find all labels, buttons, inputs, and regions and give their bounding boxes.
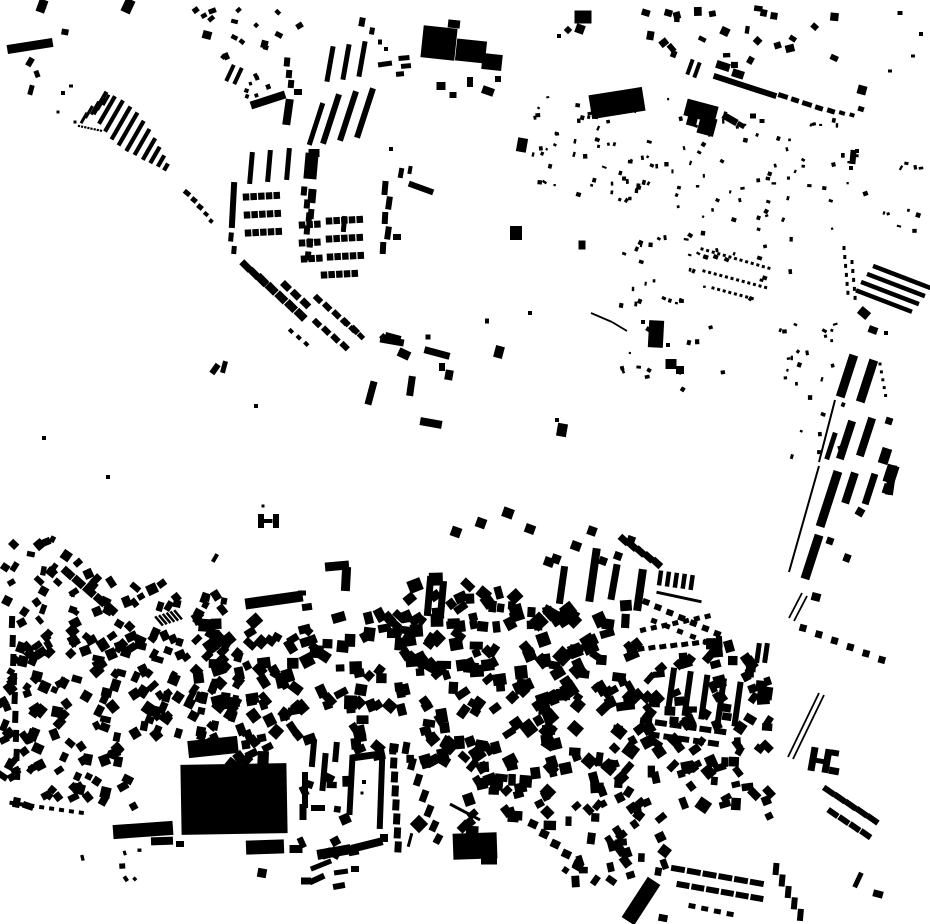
building-blocks-layer bbox=[7, 0, 930, 924]
building-rows-layer bbox=[9, 125, 887, 921]
map-canvas bbox=[0, 0, 930, 924]
figure-ground-map bbox=[0, 0, 930, 924]
building-scatter-layer bbox=[0, 5, 923, 887]
